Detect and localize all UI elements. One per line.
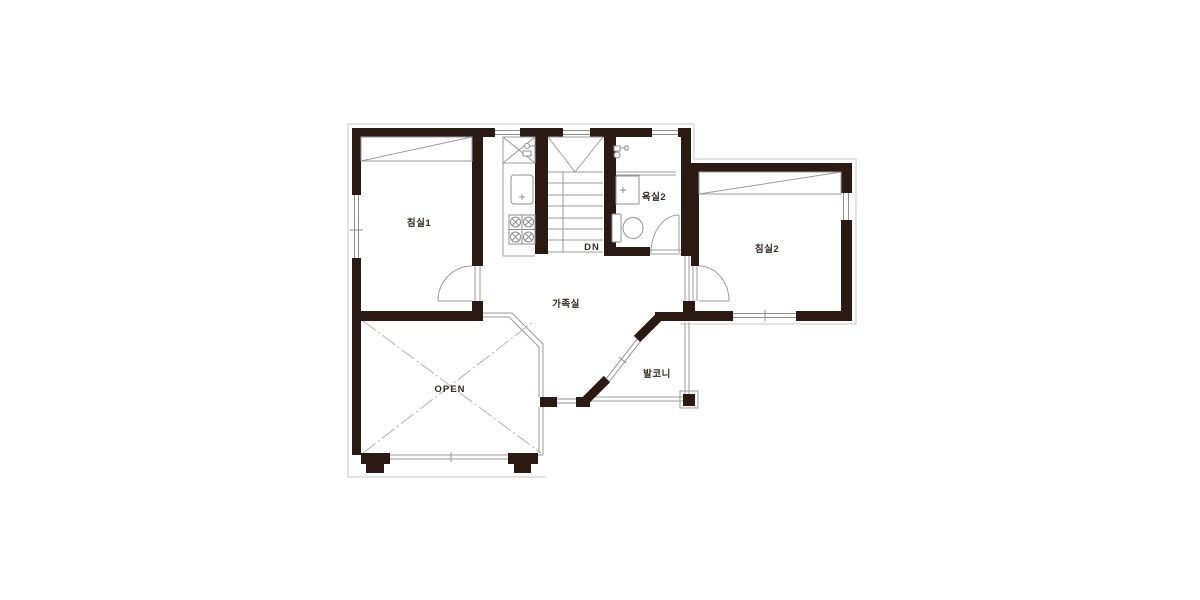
- vanity-sink-icon: [616, 176, 639, 204]
- window-bedroom2-bottom: [733, 310, 796, 321]
- room-label-bathroom2: 욕실2: [642, 191, 666, 203]
- window-balcony-diagonal: [606, 339, 640, 382]
- window-top-1: [495, 131, 520, 135]
- room-label-balcony: 발코니: [643, 368, 671, 380]
- room-label-family-room: 가족실: [552, 298, 580, 310]
- window-bedroom1-left: [350, 195, 363, 258]
- room-label-bedroom1: 침실1: [407, 217, 431, 229]
- wardrobe-bedroom1: [361, 137, 472, 161]
- walls: [352, 128, 852, 455]
- door-bedroom1: [438, 266, 480, 301]
- exterior-offset-outline: [348, 124, 856, 477]
- floor-plan-canvas: 침실1 욕실2 침실2 가족실 발코니 OPEN DN: [0, 0, 1200, 600]
- window-top-2: [563, 131, 590, 135]
- door-bedroom2: [693, 266, 729, 301]
- floor-plan-drawing: 침실1 욕실2 침실2 가족실 발코니 OPEN DN: [0, 0, 1200, 600]
- stove-icon: [509, 215, 535, 244]
- door-bathroom2: [650, 215, 681, 254]
- columns: [361, 394, 695, 473]
- stairs-direction-label: DN: [584, 242, 600, 253]
- kitchen-faucet-icon: [523, 144, 535, 157]
- passage-edge: [685, 256, 689, 301]
- kitchen-counter: [503, 137, 535, 256]
- kitchen-sink-icon: [511, 175, 533, 204]
- room-label-open-void: OPEN: [435, 384, 466, 395]
- room-label-bedroom2: 침실2: [755, 243, 779, 255]
- toilet-icon: [612, 214, 643, 242]
- stairs: [548, 137, 603, 252]
- wardrobe-bedroom2: [699, 172, 841, 194]
- window-family-south: [557, 399, 576, 403]
- shower-faucet-icon: [614, 146, 628, 158]
- window-top-bathroom: [652, 131, 678, 135]
- window-bedroom2-right: [844, 193, 849, 220]
